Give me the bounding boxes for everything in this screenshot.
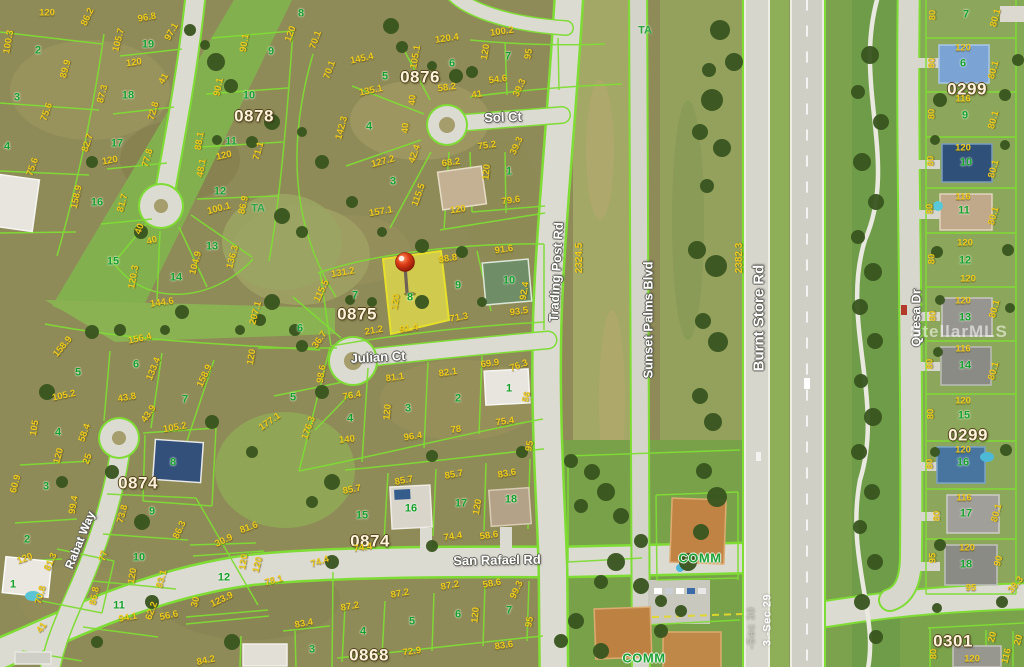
highlighted-parcel[interactable] — [383, 251, 449, 334]
parcel-map-viewport: 087808760875087408740868029902990301Sol … — [0, 0, 1024, 667]
aerial-map — [0, 0, 1024, 667]
watermark: StellarMLS — [910, 322, 1024, 342]
